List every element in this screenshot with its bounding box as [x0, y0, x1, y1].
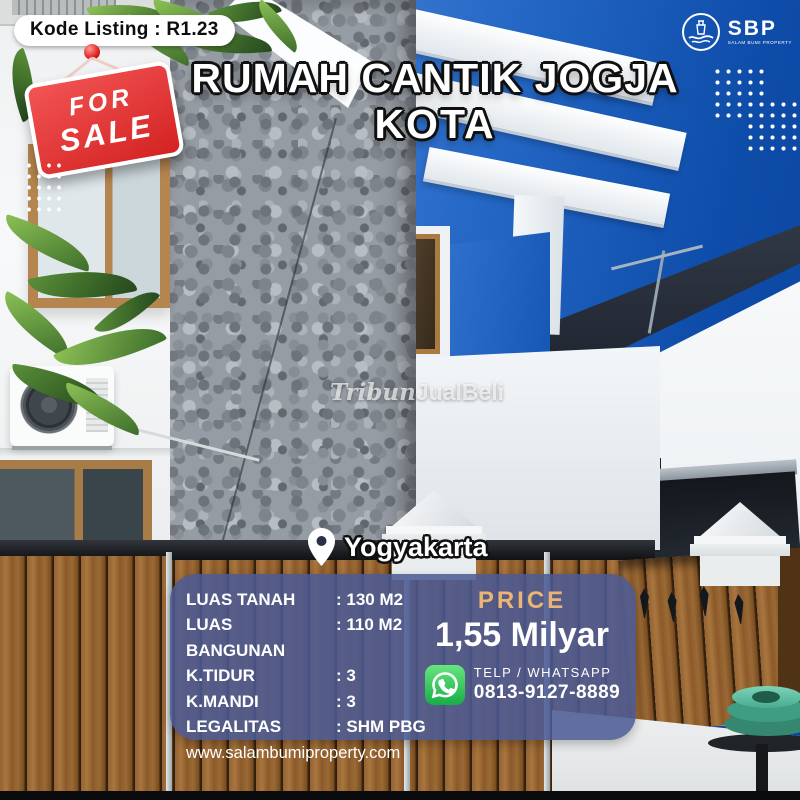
- spec-row: LUAS BANGUNAN : 110 M2: [186, 612, 426, 663]
- ac-bracket: [12, 446, 112, 450]
- balcony-sky-opening: [450, 232, 550, 358]
- spec-list: LUAS TANAH : 130 M2 LUAS BANGUNAN : 110 …: [186, 587, 426, 763]
- spec-label: LUAS TANAH: [186, 587, 336, 612]
- brand-tagline: SALAM BUMI PROPERTY: [728, 41, 792, 46]
- page-title: RUMAH CANTIK JOGJA KOTA: [70, 56, 800, 148]
- spec-value: : 130 M2: [336, 587, 403, 612]
- contact-row: TELP / WHATSAPP 0813-9127-8889: [416, 664, 628, 706]
- spec-label: LEGALITAS: [186, 714, 336, 739]
- watermark-prefix: Tribun: [330, 379, 416, 406]
- whatsapp-icon: [424, 664, 466, 706]
- lighthouse-hands-circle-icon: [681, 12, 721, 52]
- price-label: PRICE: [416, 587, 628, 615]
- hose-stand-leg: [756, 744, 768, 792]
- bottom-dark-strip: [0, 791, 800, 800]
- spec-label: K.TIDUR: [186, 663, 336, 688]
- listing-code-badge: Kode Listing : R1.23: [14, 15, 235, 46]
- location-city: Yogyakarta: [344, 532, 488, 563]
- brand-logo: SBP SALAM BUMI PROPERTY: [681, 12, 792, 52]
- info-panel: LUAS TANAH : 130 M2 LUAS BANGUNAN : 110 …: [170, 574, 636, 740]
- contact-phone: 0813-9127-8889: [474, 681, 620, 705]
- right-pillar-body: [700, 556, 780, 586]
- left-fence-slats: [0, 556, 170, 792]
- dot-pattern-right: [745, 99, 800, 154]
- spec-value: : 110 M2: [336, 612, 402, 663]
- spec-row: K.TIDUR : 3: [186, 663, 426, 688]
- spec-value: : 3: [336, 689, 356, 714]
- right-pillar-step: [690, 544, 790, 556]
- title-line2: KOTA: [70, 102, 800, 148]
- coiled-hose-center: [752, 691, 780, 703]
- spec-label: LUAS BANGUNAN: [186, 612, 336, 663]
- spec-value: : 3: [336, 663, 356, 688]
- spec-row: LEGALITAS : SHM PBG: [186, 714, 426, 739]
- contact-text: TELP / WHATSAPP 0813-9127-8889: [474, 665, 620, 705]
- listing-code-text: Kode Listing : R1.23: [30, 19, 219, 40]
- spec-row: LUAS TANAH : 130 M2: [186, 587, 426, 612]
- website-url: www.salambumiproperty.com: [186, 744, 426, 763]
- location-row: Yogyakarta: [308, 528, 488, 566]
- watermark-suffix: JualBeli: [416, 379, 504, 406]
- brand-name: SBP: [728, 18, 792, 39]
- price-section: PRICE 1,55 Milyar TELP / WHATSAPP 0813-9…: [416, 574, 628, 706]
- dot-pattern-left: [24, 160, 64, 214]
- spec-row: K.MANDI : 3: [186, 689, 426, 714]
- brand-text: SBP SALAM BUMI PROPERTY: [728, 18, 792, 46]
- site-watermark: Tribun JualBeli: [330, 379, 504, 406]
- contact-method: TELP / WHATSAPP: [474, 665, 620, 681]
- spec-label: K.MANDI: [186, 689, 336, 714]
- property-listing-flyer: Kode Listing : R1.23 FOR SALE RUMAH CANT…: [0, 0, 800, 800]
- price-value: 1,55 Milyar: [416, 616, 628, 655]
- spec-value: : SHM PBG: [336, 714, 426, 739]
- title-line1: RUMAH CANTIK JOGJA: [70, 56, 800, 102]
- map-pin-icon: [308, 528, 335, 566]
